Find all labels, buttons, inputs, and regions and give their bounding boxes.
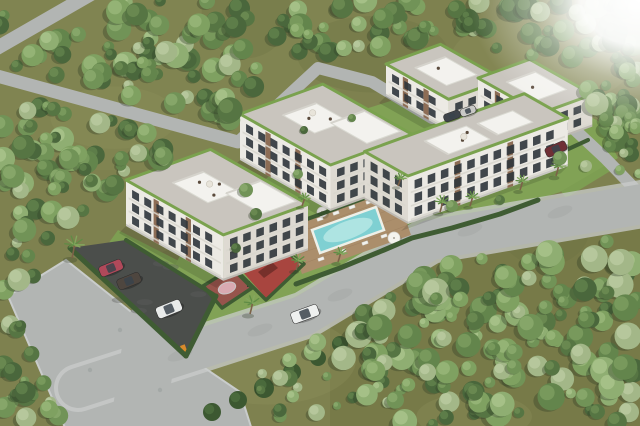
roof-furniture: [437, 67, 440, 70]
road-bottom-exit: [136, 328, 152, 426]
roof-furniture: [212, 193, 215, 196]
aerial-site-render: [0, 0, 640, 426]
roof-furniture: [307, 117, 310, 120]
aerial-site-render-canvas: [0, 0, 640, 426]
roof-furniture: [329, 117, 332, 120]
roof-umbrella: [206, 181, 212, 187]
roof-furniture: [218, 182, 221, 185]
roof-umbrella: [461, 133, 467, 139]
roof-furniture: [198, 181, 201, 184]
overexposed-corner: [470, 0, 640, 130]
roof-furniture: [466, 131, 469, 134]
roof-umbrella: [309, 110, 315, 116]
